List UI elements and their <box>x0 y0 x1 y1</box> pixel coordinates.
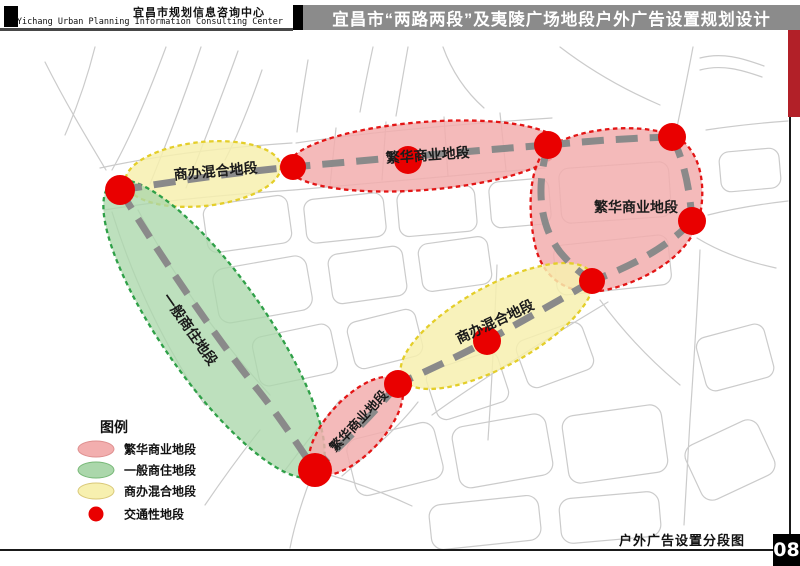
legend-title: 图例 <box>100 419 128 435</box>
traffic-node <box>534 131 562 159</box>
page-title: 宜昌市“两路两段”及夷陵广场地段户外广告设置规划设计 <box>332 6 771 30</box>
legend: 图例 繁华商业地段 一般商住地段 商办混合地段 交通性地段 <box>78 419 197 522</box>
legend-swatch-traffic-dot <box>89 507 104 522</box>
header-rule <box>0 28 293 31</box>
planning-map: 商办混合地段 繁华商业地段 繁华商业地段 商办混合地段 繁华商业地段 一般商住地… <box>0 0 800 566</box>
page-number: 08 <box>773 539 799 561</box>
frame-bottom-line <box>0 549 790 551</box>
traffic-node <box>298 453 332 487</box>
legend-label: 商办混合地段 <box>124 484 197 499</box>
frame-right-line <box>789 117 791 534</box>
legend-swatch-commercial <box>78 441 114 457</box>
traffic-node <box>105 175 135 205</box>
org-name-en: Yichang Urban Planning Information Consu… <box>0 17 283 27</box>
traffic-node <box>678 207 706 235</box>
page: 商办混合地段 繁华商业地段 繁华商业地段 商办混合地段 繁华商业地段 一般商住地… <box>0 0 800 566</box>
traffic-node <box>579 268 605 294</box>
accent-red-bar <box>788 30 800 117</box>
legend-swatch-residential <box>78 462 114 478</box>
map-caption: 户外广告设置分段图 <box>595 530 745 549</box>
traffic-node <box>280 154 306 180</box>
legend-label: 一般商住地段 <box>124 463 197 478</box>
traffic-node <box>658 123 686 151</box>
title-bar: 宜昌市“两路两段”及夷陵广场地段户外广告设置规划设计 <box>303 5 800 30</box>
header-divider <box>293 5 303 30</box>
zone-label-commercial-east: 繁华商业地段 <box>593 199 678 215</box>
traffic-node <box>384 370 412 398</box>
page-number-box: 08 <box>773 534 800 566</box>
legend-swatch-mixed <box>78 483 114 499</box>
legend-label: 繁华商业地段 <box>124 442 197 457</box>
legend-label: 交通性地段 <box>124 507 185 522</box>
